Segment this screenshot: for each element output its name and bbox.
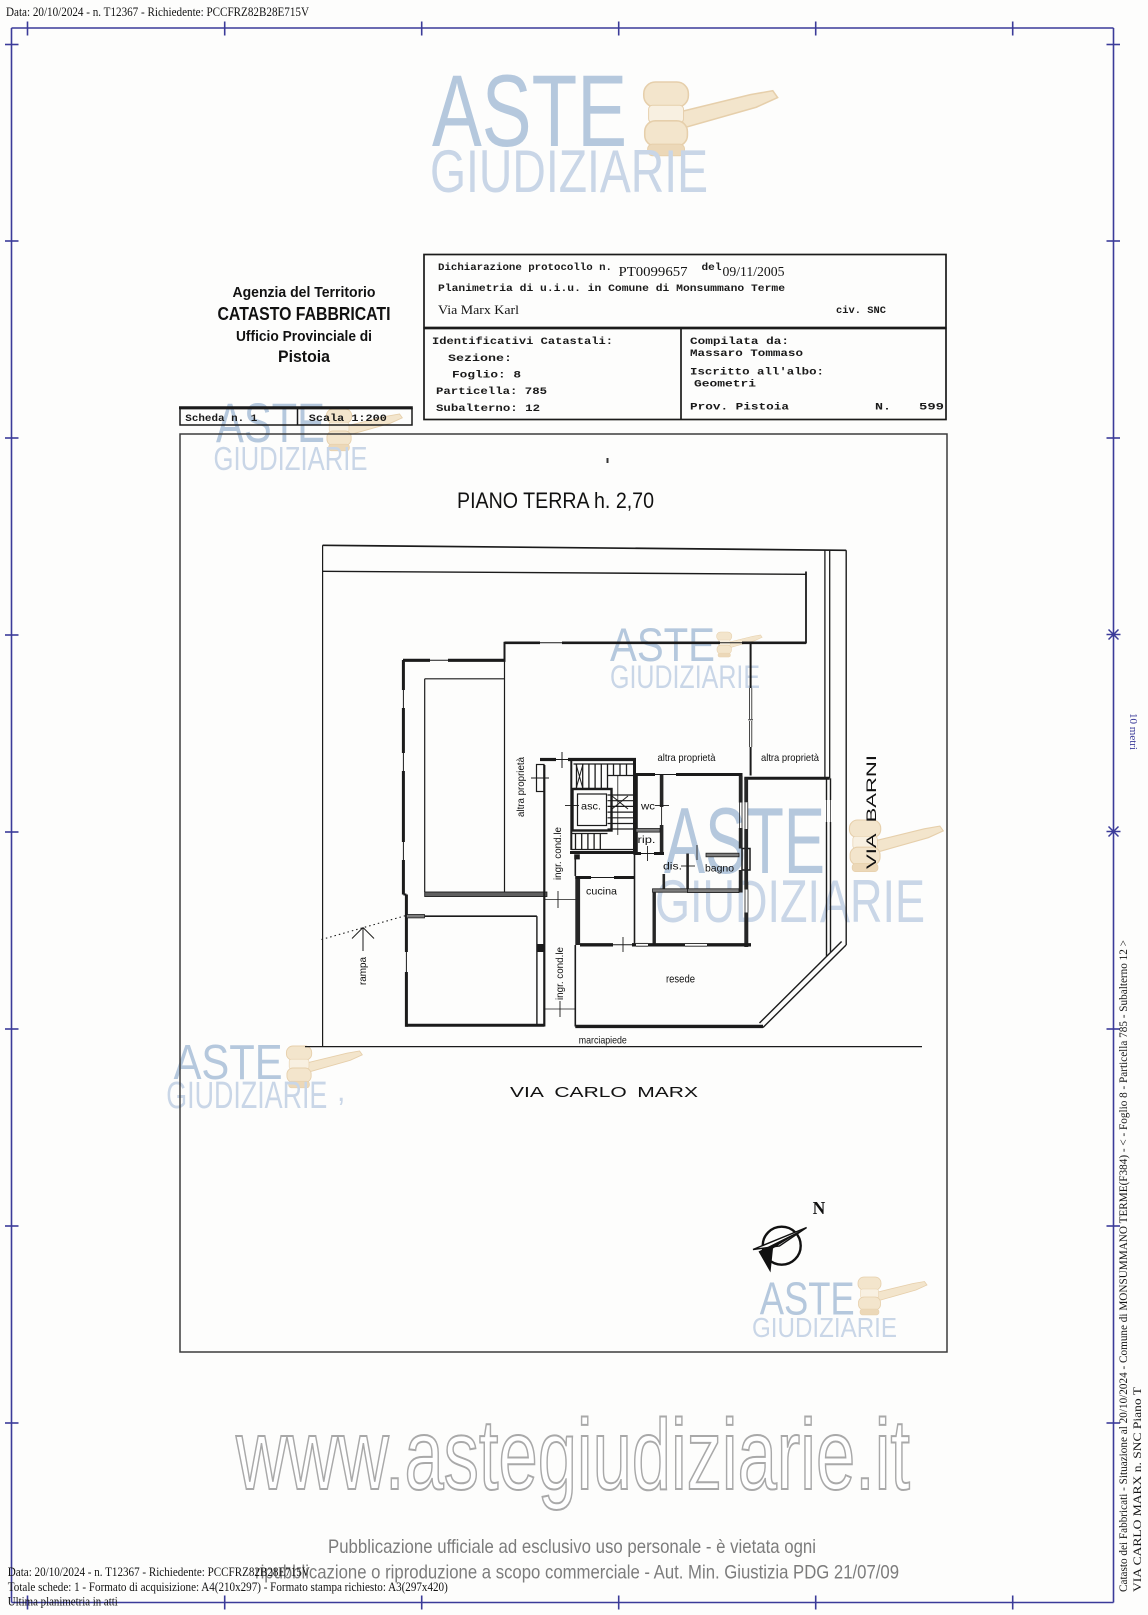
svg-text:599: 599: [919, 402, 944, 414]
svg-text:Particella: 785: Particella: 785: [436, 386, 547, 398]
svg-text:wc: wc: [640, 801, 655, 813]
svg-text:Iscritto all'albo:: Iscritto all'albo:: [690, 367, 824, 379]
svg-text:Via Marx Karl: Via Marx Karl: [438, 303, 519, 317]
svg-text:Foglio: 8: Foglio: 8: [452, 370, 521, 382]
svg-text:Ufficio Provinciale di: Ufficio Provinciale di: [236, 329, 372, 345]
svg-text:GIUDIZIARIE: GIUDIZIARIE: [610, 659, 760, 695]
svg-text:Agenzia del Territorio: Agenzia del Territorio: [233, 285, 376, 301]
svg-text:PIANO TERRA h. 2,70: PIANO TERRA h. 2,70: [457, 488, 654, 513]
svg-text:cucina: cucina: [586, 886, 617, 898]
svg-text:Ultima planimetria in atti: Ultima planimetria in atti: [8, 1595, 119, 1609]
svg-text:Sezione:: Sezione:: [448, 353, 512, 365]
svg-text:GIUDIZIARIE: GIUDIZIARIE: [430, 138, 708, 205]
svg-text:www.astegiudiziarie.it: www.astegiudiziarie.it: [235, 1399, 910, 1511]
svg-text:Geometri: Geometri: [694, 379, 756, 391]
svg-text:N.: N.: [875, 402, 891, 414]
svg-text:Prov. Pistoia: Prov. Pistoia: [690, 402, 789, 414]
svg-text:GIUDIZIARIE: GIUDIZIARIE: [166, 1074, 327, 1116]
svg-text:N: N: [813, 1198, 826, 1218]
svg-text:Dichiarazione protocollo n.: Dichiarazione protocollo n.: [438, 262, 612, 274]
svg-text:Data: 20/10/2024 - n. T12367 -: Data: 20/10/2024 - n. T12367 - Richieden…: [6, 5, 309, 19]
svg-text:altra proprietà: altra proprietà: [658, 753, 716, 764]
svg-text:GIUDIZIARIE: GIUDIZIARIE: [214, 441, 368, 478]
svg-text:ingr. cond.le: ingr. cond.le: [553, 827, 564, 880]
svg-text:Scheda n. 1: Scheda n. 1: [185, 413, 257, 425]
svg-text:10 metri: 10 metri: [1127, 713, 1138, 750]
svg-text:marciapiede: marciapiede: [579, 1036, 627, 1047]
svg-text:civ. SNC: civ. SNC: [836, 305, 886, 317]
svg-text:CATASTO FABBRICATI: CATASTO FABBRICATI: [218, 304, 391, 324]
svg-text:dis.: dis.: [663, 861, 682, 873]
svg-text:Identificativi Catastali:: Identificativi Catastali:: [432, 336, 613, 348]
svg-text:bagno: bagno: [705, 863, 734, 875]
svg-text:Pubblicazione ufficiale ad esc: Pubblicazione ufficiale ad esclusivo uso…: [328, 1536, 816, 1558]
svg-text:Subalterno: 12: Subalterno: 12: [436, 403, 540, 415]
svg-text:altra proprietà: altra proprietà: [516, 757, 527, 817]
svg-text:rampa: rampa: [358, 957, 369, 985]
svg-text:VIA CARLO MARX n. SNC Piano T: VIA CARLO MARX n. SNC Piano T: [1131, 1387, 1144, 1592]
svg-text:VIA BARNI: VIA BARNI: [864, 755, 879, 869]
svg-text:altra proprietà: altra proprietà: [761, 753, 819, 764]
svg-text:resede: resede: [666, 974, 695, 986]
svg-text:del: del: [702, 262, 722, 274]
svg-text:GIUDIZIARIE: GIUDIZIARIE: [655, 868, 925, 935]
svg-text:Catasto dei Fabbricati - Situa: Catasto dei Fabbricati - Situazione al 2…: [1117, 940, 1130, 1592]
svg-text:GIUDIZIARIE: GIUDIZIARIE: [752, 1312, 897, 1343]
svg-text:Data: 20/10/2024 - n. T12367 -: Data: 20/10/2024 - n. T12367 - Richieden…: [8, 1565, 310, 1579]
svg-text:09/11/2005: 09/11/2005: [723, 264, 785, 279]
svg-text:Compilata da:: Compilata da:: [690, 336, 789, 348]
svg-text:,: ,: [337, 1075, 345, 1108]
svg-text:Planimetria di u.i.u. in Comun: Planimetria di u.i.u. in Comune di Monsu…: [438, 283, 785, 295]
svg-text:ingr. cond.le: ingr. cond.le: [555, 947, 566, 1000]
svg-text:PT0099657: PT0099657: [619, 264, 688, 279]
svg-text:rip.: rip.: [638, 834, 656, 846]
svg-text:asc.: asc.: [581, 802, 601, 813]
svg-text:Scala 1:200: Scala 1:200: [309, 413, 387, 425]
svg-text:Totale schede: 1 - Formato di: Totale schede: 1 - Formato di acquisizio…: [8, 1580, 448, 1594]
svg-text:Massaro Tommaso: Massaro Tommaso: [690, 348, 803, 360]
svg-text:Pistoia: Pistoia: [278, 348, 331, 366]
svg-text:VIA CARLO MARX: VIA CARLO MARX: [510, 1085, 698, 1101]
